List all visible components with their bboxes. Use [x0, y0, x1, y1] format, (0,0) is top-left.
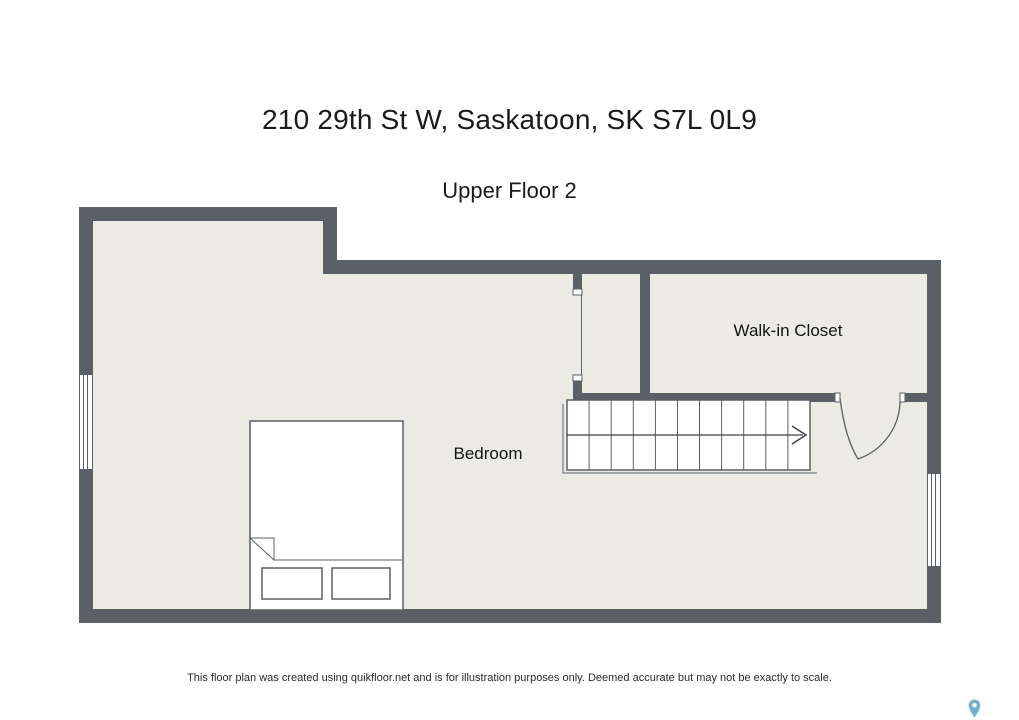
floor-plan-page: 210 29th St W, Saskatoon, SK S7L 0L9 Upp…: [0, 0, 1019, 720]
room-label-walk-in-closet: Walk-in Closet: [734, 320, 843, 342]
wall-segment: [79, 609, 941, 623]
left-window-symbol: [80, 375, 93, 470]
jamb-cap: [573, 289, 582, 295]
room-label-bedroom: Bedroom: [454, 443, 523, 465]
floor-plan-drawing: [0, 0, 1019, 720]
bed-pillow: [332, 568, 390, 599]
wall-segment: [323, 260, 941, 274]
wall-segment: [927, 260, 941, 623]
map-pin-icon: [968, 699, 981, 718]
jamb-cap: [573, 375, 582, 381]
jamb-cap: [900, 393, 905, 402]
window-glass: [80, 375, 93, 470]
wall-segment: [79, 207, 337, 221]
bed-pillow: [262, 568, 322, 599]
stairs: [563, 400, 817, 473]
bed: [250, 421, 403, 610]
jamb-cap: [835, 393, 840, 402]
right-window-symbol: [928, 474, 941, 567]
wall-segment: [640, 274, 650, 402]
disclaimer-text: This floor plan was created using quikfl…: [0, 671, 1019, 685]
window-glass: [928, 474, 941, 567]
wall-segment: [573, 274, 582, 289]
wall-segment: [573, 381, 582, 393]
